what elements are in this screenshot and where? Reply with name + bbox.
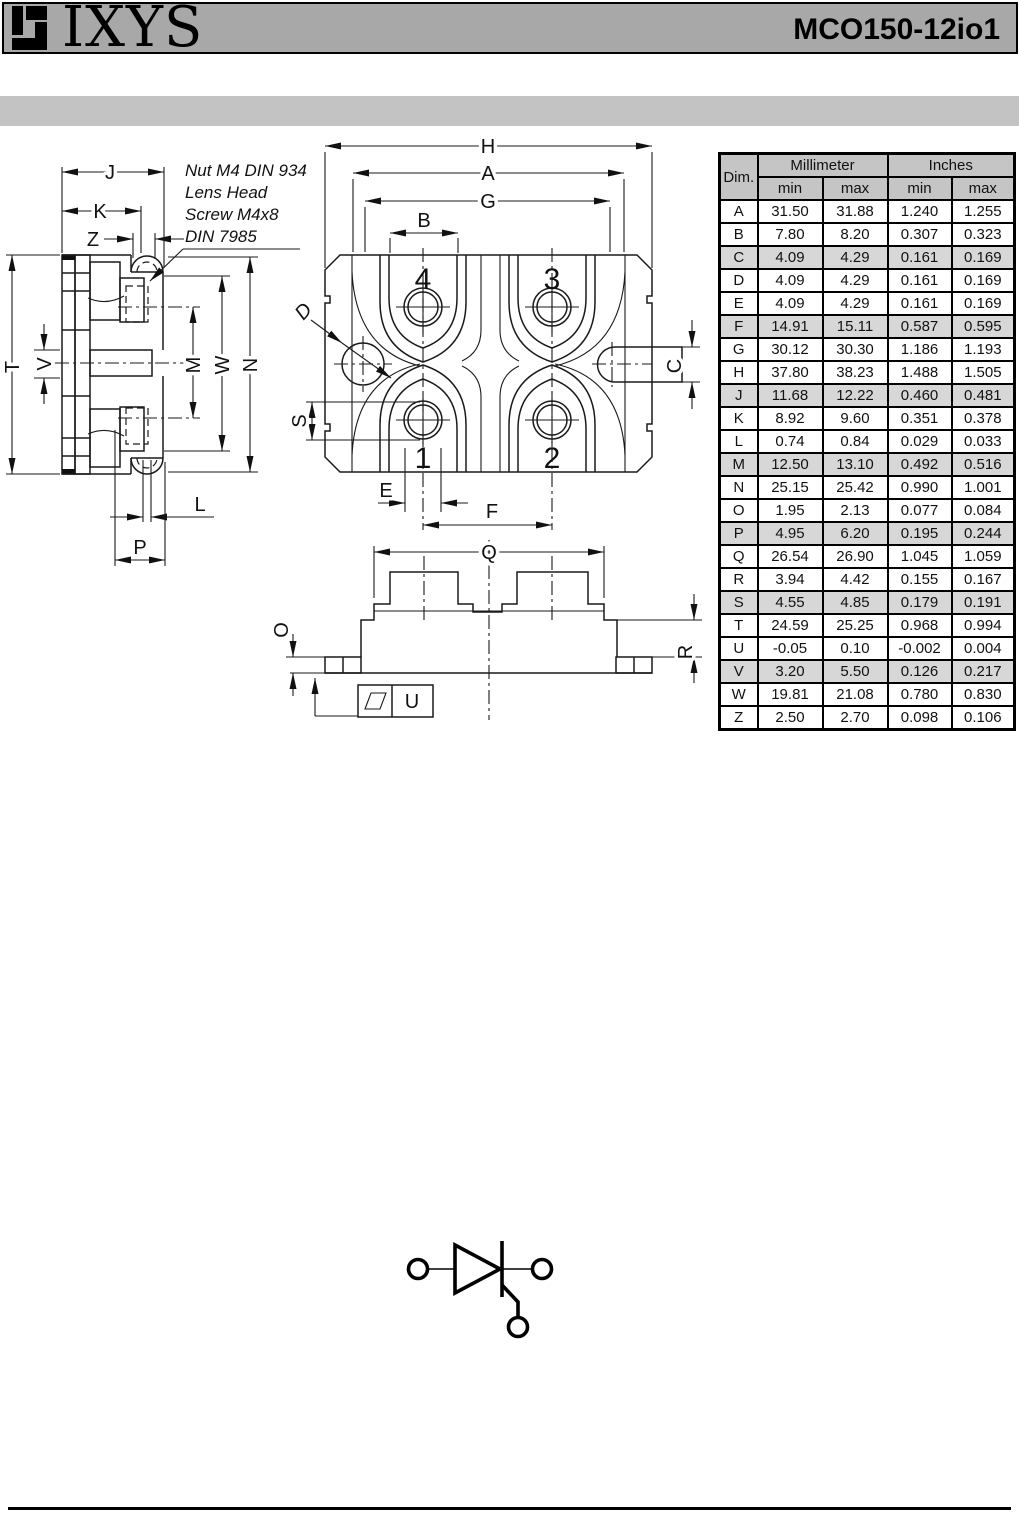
cell-P-in_min: 0.195 bbox=[888, 522, 952, 545]
cell-P-mm_max: 6.20 bbox=[823, 522, 888, 545]
table-row-F: F14.9115.110.5870.595 bbox=[720, 315, 1015, 338]
cell-P-in_max: 0.244 bbox=[952, 522, 1015, 545]
table-row-P: P4.956.200.1950.244 bbox=[720, 522, 1015, 545]
cell-L-dim: L bbox=[720, 430, 758, 453]
cell-B-in_min: 0.307 bbox=[888, 223, 952, 246]
cell-N-mm_min: 25.15 bbox=[758, 476, 823, 499]
thyristor-symbol bbox=[380, 1228, 580, 1348]
cell-H-mm_min: 37.80 bbox=[758, 361, 823, 384]
cell-L-mm_max: 0.84 bbox=[823, 430, 888, 453]
dim-label-F: F bbox=[486, 501, 498, 523]
cell-C-in_max: 0.169 bbox=[952, 246, 1015, 269]
cell-W-in_min: 0.780 bbox=[888, 683, 952, 706]
terminal-number-3: 3 bbox=[544, 263, 561, 296]
table-row-K: K8.929.600.3510.378 bbox=[720, 407, 1015, 430]
cell-M-in_min: 0.492 bbox=[888, 453, 952, 476]
table-row-D: D4.094.290.1610.169 bbox=[720, 269, 1015, 292]
terminal-number-4: 4 bbox=[415, 263, 432, 296]
dim-label-R: R bbox=[675, 645, 697, 659]
cell-U-dim: U bbox=[720, 637, 758, 660]
cell-J-in_min: 0.460 bbox=[888, 384, 952, 407]
cell-K-in_min: 0.351 bbox=[888, 407, 952, 430]
cell-E-in_max: 0.169 bbox=[952, 292, 1015, 315]
cell-T-dim: T bbox=[720, 614, 758, 637]
cell-W-dim: W bbox=[720, 683, 758, 706]
table-row-J: J11.6812.220.4600.481 bbox=[720, 384, 1015, 407]
annotation-line-4: DIN 7985 bbox=[185, 227, 257, 246]
section-banner bbox=[0, 96, 1019, 126]
cell-O-in_min: 0.077 bbox=[888, 499, 952, 522]
cell-N-mm_max: 25.42 bbox=[823, 476, 888, 499]
cell-F-in_max: 0.595 bbox=[952, 315, 1015, 338]
cell-Q-in_min: 1.045 bbox=[888, 545, 952, 568]
table-header-dim: Dim. bbox=[720, 154, 758, 201]
table-row-N: N25.1525.420.9901.001 bbox=[720, 476, 1015, 499]
cell-L-in_max: 0.033 bbox=[952, 430, 1015, 453]
cell-Q-in_max: 1.059 bbox=[952, 545, 1015, 568]
cell-B-mm_min: 7.80 bbox=[758, 223, 823, 246]
cell-N-in_min: 0.990 bbox=[888, 476, 952, 499]
table-row-B: B7.808.200.3070.323 bbox=[720, 223, 1015, 246]
cell-M-in_max: 0.516 bbox=[952, 453, 1015, 476]
screw-annotation: Nut M4 DIN 934 Lens Head Screw M4x8 DIN … bbox=[150, 161, 307, 281]
cell-K-mm_min: 8.92 bbox=[758, 407, 823, 430]
cell-V-in_min: 0.126 bbox=[888, 660, 952, 683]
cell-O-mm_max: 2.13 bbox=[823, 499, 888, 522]
dim-label-N: N bbox=[240, 358, 262, 372]
dim-label-T: T bbox=[2, 361, 24, 373]
cell-T-in_max: 0.994 bbox=[952, 614, 1015, 637]
cell-D-mm_min: 4.09 bbox=[758, 269, 823, 292]
dim-label-D: D bbox=[291, 299, 317, 324]
cell-V-dim: V bbox=[720, 660, 758, 683]
cell-V-mm_max: 5.50 bbox=[823, 660, 888, 683]
dim-label-C: C bbox=[664, 359, 686, 373]
cell-E-dim: E bbox=[720, 292, 758, 315]
cell-D-mm_max: 4.29 bbox=[823, 269, 888, 292]
table-row-W: W19.8121.080.7800.830 bbox=[720, 683, 1015, 706]
cell-E-mm_max: 4.29 bbox=[823, 292, 888, 315]
cell-E-mm_min: 4.09 bbox=[758, 292, 823, 315]
table-header-sub-1: max bbox=[823, 177, 888, 200]
cell-Z-mm_max: 2.70 bbox=[823, 706, 888, 730]
gate-terminal bbox=[509, 1318, 528, 1337]
table-row-Q: Q26.5426.901.0451.059 bbox=[720, 545, 1015, 568]
cell-B-in_max: 0.323 bbox=[952, 223, 1015, 246]
cell-N-dim: N bbox=[720, 476, 758, 499]
anode-terminal bbox=[409, 1260, 428, 1279]
cell-G-in_max: 1.193 bbox=[952, 338, 1015, 361]
cell-U-in_min: -0.002 bbox=[888, 637, 952, 660]
dim-label-V: V bbox=[34, 357, 56, 371]
cell-J-in_max: 0.481 bbox=[952, 384, 1015, 407]
cell-W-mm_max: 21.08 bbox=[823, 683, 888, 706]
cell-A-in_min: 1.240 bbox=[888, 200, 952, 223]
cell-C-dim: C bbox=[720, 246, 758, 269]
cell-Z-dim: Z bbox=[720, 706, 758, 730]
dim-label-B: B bbox=[417, 210, 430, 232]
dim-label-Q: Q bbox=[481, 542, 497, 564]
table-row-O: O1.952.130.0770.084 bbox=[720, 499, 1015, 522]
cell-J-dim: J bbox=[720, 384, 758, 407]
cell-R-in_min: 0.155 bbox=[888, 568, 952, 591]
page-footer-rule bbox=[8, 1507, 1011, 1510]
cell-T-mm_min: 24.59 bbox=[758, 614, 823, 637]
top-view: 4 3 1 2 D C S E F bbox=[289, 136, 700, 530]
cell-M-dim: M bbox=[720, 453, 758, 476]
table-row-G: G30.1230.301.1861.193 bbox=[720, 338, 1015, 361]
cell-P-dim: P bbox=[720, 522, 758, 545]
cell-R-mm_min: 3.94 bbox=[758, 568, 823, 591]
cell-Q-dim: Q bbox=[720, 545, 758, 568]
cell-A-mm_max: 31.88 bbox=[823, 200, 888, 223]
dim-label-W: W bbox=[212, 355, 234, 374]
cell-A-dim: A bbox=[720, 200, 758, 223]
cell-D-in_min: 0.161 bbox=[888, 269, 952, 292]
cell-G-mm_max: 30.30 bbox=[823, 338, 888, 361]
cell-J-mm_min: 11.68 bbox=[758, 384, 823, 407]
cell-V-mm_min: 3.20 bbox=[758, 660, 823, 683]
cell-Q-mm_max: 26.90 bbox=[823, 545, 888, 568]
cell-Z-in_min: 0.098 bbox=[888, 706, 952, 730]
terminal-number-2: 2 bbox=[544, 442, 561, 475]
cell-H-dim: H bbox=[720, 361, 758, 384]
table-row-V: V3.205.500.1260.217 bbox=[720, 660, 1015, 683]
dim-label-U: U bbox=[405, 691, 419, 713]
cell-M-mm_min: 12.50 bbox=[758, 453, 823, 476]
dimension-table: Dim.MillimeterInchesminmaxminmaxA31.5031… bbox=[718, 152, 1016, 731]
ixys-logo-text: IXYS bbox=[62, 0, 203, 60]
table-header-sub-0: min bbox=[758, 177, 823, 200]
dim-label-M: M bbox=[183, 357, 205, 374]
side-view: T V J K Z M W N L bbox=[2, 161, 307, 566]
cell-G-mm_min: 30.12 bbox=[758, 338, 823, 361]
table-header-group-0: Millimeter bbox=[758, 154, 888, 178]
flatness-icon bbox=[365, 693, 386, 709]
cell-A-in_max: 1.255 bbox=[952, 200, 1015, 223]
cell-B-mm_max: 8.20 bbox=[823, 223, 888, 246]
cell-F-in_min: 0.587 bbox=[888, 315, 952, 338]
table-row-Z: Z2.502.700.0980.106 bbox=[720, 706, 1015, 730]
mounting-hole bbox=[334, 336, 392, 392]
cell-N-in_max: 1.001 bbox=[952, 476, 1015, 499]
cell-Q-mm_min: 26.54 bbox=[758, 545, 823, 568]
cell-E-in_min: 0.161 bbox=[888, 292, 952, 315]
dim-label-K: K bbox=[93, 201, 107, 223]
datasheet-page: { "header": { "logo_text": "IXYS", "part… bbox=[0, 0, 1019, 1515]
cell-Z-mm_min: 2.50 bbox=[758, 706, 823, 730]
cell-R-dim: R bbox=[720, 568, 758, 591]
cell-V-in_max: 0.217 bbox=[952, 660, 1015, 683]
cell-F-mm_max: 15.11 bbox=[823, 315, 888, 338]
dim-label-S: S bbox=[289, 414, 311, 427]
cell-S-dim: S bbox=[720, 591, 758, 614]
cell-H-in_min: 1.488 bbox=[888, 361, 952, 384]
cell-U-mm_min: -0.05 bbox=[758, 637, 823, 660]
cell-R-in_max: 0.167 bbox=[952, 568, 1015, 591]
cell-S-in_min: 0.179 bbox=[888, 591, 952, 614]
cell-T-in_min: 0.968 bbox=[888, 614, 952, 637]
flatness-tolerance-box: U bbox=[315, 678, 433, 717]
cell-B-dim: B bbox=[720, 223, 758, 246]
dim-label-J: J bbox=[105, 162, 115, 184]
dim-label-E: E bbox=[379, 480, 392, 502]
cell-S-mm_min: 4.55 bbox=[758, 591, 823, 614]
annotation-line-1: Nut M4 DIN 934 bbox=[185, 161, 307, 180]
cell-G-in_min: 1.186 bbox=[888, 338, 952, 361]
cell-T-mm_max: 25.25 bbox=[823, 614, 888, 637]
table-row-H: H37.8038.231.4881.505 bbox=[720, 361, 1015, 384]
cell-D-dim: D bbox=[720, 269, 758, 292]
cell-K-mm_max: 9.60 bbox=[823, 407, 888, 430]
cell-C-mm_min: 4.09 bbox=[758, 246, 823, 269]
table-row-E: E4.094.290.1610.169 bbox=[720, 292, 1015, 315]
cell-P-mm_min: 4.95 bbox=[758, 522, 823, 545]
dim-label-Z: Z bbox=[87, 229, 99, 251]
part-number: MCO150-12io1 bbox=[793, 13, 1000, 47]
cell-W-mm_min: 19.81 bbox=[758, 683, 823, 706]
cell-A-mm_min: 31.50 bbox=[758, 200, 823, 223]
profile-view: Q O R U bbox=[271, 540, 702, 720]
terminal-number-1: 1 bbox=[415, 442, 432, 475]
gate-lead bbox=[502, 1285, 518, 1317]
table-row-A: A31.5031.881.2401.255 bbox=[720, 200, 1015, 223]
table-header-sub-3: max bbox=[952, 177, 1015, 200]
cell-Z-in_max: 0.106 bbox=[952, 706, 1015, 730]
table-header-sub-2: min bbox=[888, 177, 952, 200]
dim-label-L: L bbox=[194, 494, 205, 516]
cell-R-mm_max: 4.42 bbox=[823, 568, 888, 591]
table-row-M: M12.5013.100.4920.516 bbox=[720, 453, 1015, 476]
cell-K-dim: K bbox=[720, 407, 758, 430]
dim-label-H: H bbox=[481, 136, 495, 158]
cell-S-in_max: 0.191 bbox=[952, 591, 1015, 614]
cell-L-in_min: 0.029 bbox=[888, 430, 952, 453]
package-outline-drawing: T V J K Z M W N L bbox=[0, 130, 719, 730]
table-header-group-1: Inches bbox=[888, 154, 1015, 178]
cell-W-in_max: 0.830 bbox=[952, 683, 1015, 706]
cell-F-dim: F bbox=[720, 315, 758, 338]
cell-H-in_max: 1.505 bbox=[952, 361, 1015, 384]
cell-F-mm_min: 14.91 bbox=[758, 315, 823, 338]
cell-L-mm_min: 0.74 bbox=[758, 430, 823, 453]
cell-D-in_max: 0.169 bbox=[952, 269, 1015, 292]
cell-M-mm_max: 13.10 bbox=[823, 453, 888, 476]
dim-table-body: Dim.MillimeterInchesminmaxminmaxA31.5031… bbox=[720, 154, 1015, 730]
table-row-U: U-0.050.10-0.0020.004 bbox=[720, 637, 1015, 660]
cell-O-mm_min: 1.95 bbox=[758, 499, 823, 522]
annotation-line-3: Screw M4x8 bbox=[185, 205, 279, 224]
cell-U-in_max: 0.004 bbox=[952, 637, 1015, 660]
cathode-terminal bbox=[533, 1260, 552, 1279]
cell-G-dim: G bbox=[720, 338, 758, 361]
cell-C-mm_max: 4.29 bbox=[823, 246, 888, 269]
cell-S-mm_max: 4.85 bbox=[823, 591, 888, 614]
annotation-line-2: Lens Head bbox=[185, 183, 268, 202]
cell-J-mm_max: 12.22 bbox=[823, 384, 888, 407]
dim-label-O: O bbox=[271, 622, 293, 638]
table-row-R: R3.944.420.1550.167 bbox=[720, 568, 1015, 591]
cell-U-mm_max: 0.10 bbox=[823, 637, 888, 660]
dim-label-A: A bbox=[481, 163, 495, 185]
header-bar: IXYS MCO150-12io1 bbox=[2, 2, 1018, 54]
cell-H-mm_max: 38.23 bbox=[823, 361, 888, 384]
table-row-T: T24.5925.250.9680.994 bbox=[720, 614, 1015, 637]
dim-label-P: P bbox=[133, 537, 146, 559]
table-row-S: S4.554.850.1790.191 bbox=[720, 591, 1015, 614]
cell-C-in_min: 0.161 bbox=[888, 246, 952, 269]
table-row-C: C4.094.290.1610.169 bbox=[720, 246, 1015, 269]
cell-K-in_max: 0.378 bbox=[952, 407, 1015, 430]
thyristor-triangle bbox=[455, 1245, 500, 1293]
table-row-L: L0.740.840.0290.033 bbox=[720, 430, 1015, 453]
cell-O-in_max: 0.084 bbox=[952, 499, 1015, 522]
dim-label-G: G bbox=[480, 191, 496, 213]
cell-O-dim: O bbox=[720, 499, 758, 522]
